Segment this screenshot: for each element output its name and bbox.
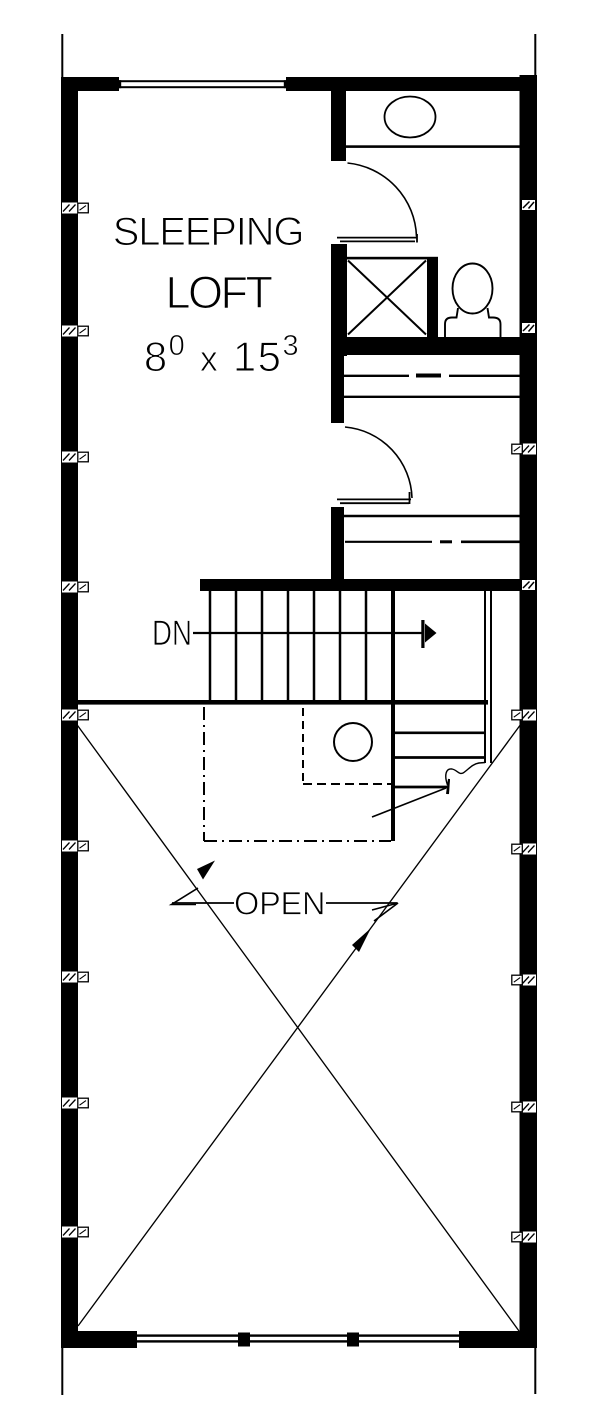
svg-text:DN: DN bbox=[152, 613, 192, 653]
svg-text:OPEN: OPEN bbox=[234, 886, 325, 922]
svg-text:80 x 153: 80 x 153 bbox=[144, 330, 300, 380]
svg-text:SLEEPING: SLEEPING bbox=[113, 210, 303, 254]
svg-text:LOFT: LOFT bbox=[165, 267, 272, 318]
